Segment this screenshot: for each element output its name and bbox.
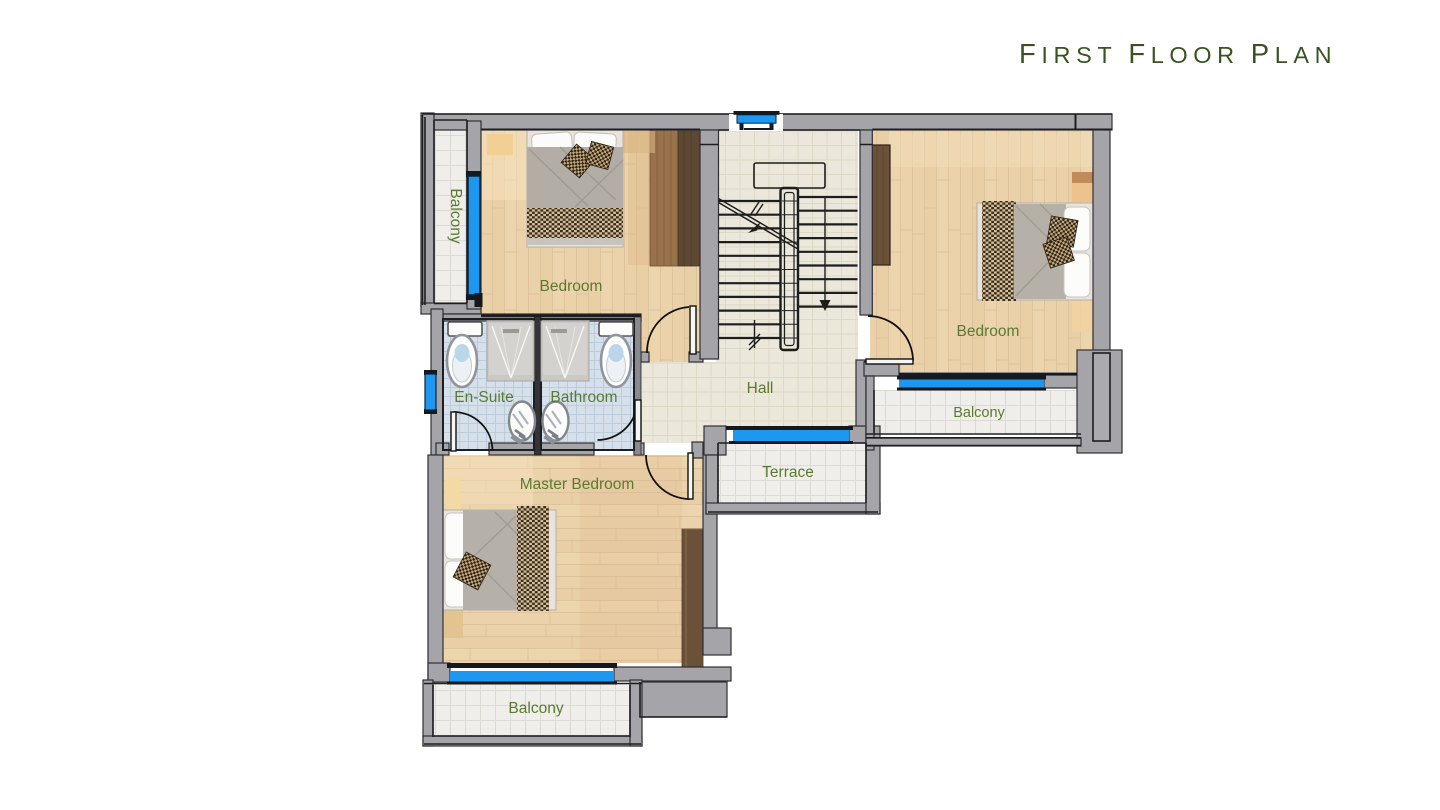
- svg-text:Bathroom: Bathroom: [550, 389, 617, 406]
- svg-text:FIRSTFLOORPLAN: FIRSTFLOORPLAN: [1019, 38, 1337, 69]
- svg-text:Balcony: Balcony: [508, 700, 563, 717]
- svg-text:Master Bedroom: Master Bedroom: [520, 476, 635, 493]
- svg-text:Balcony: Balcony: [953, 405, 1005, 421]
- svg-text:Hall: Hall: [747, 380, 774, 397]
- svg-text:Bedroom: Bedroom: [957, 323, 1020, 340]
- svg-text:En-Suite: En-Suite: [454, 389, 513, 406]
- svg-text:Terrace: Terrace: [762, 464, 814, 481]
- svg-text:Balcony: Balcony: [447, 188, 464, 243]
- svg-text:Bedroom: Bedroom: [540, 278, 603, 295]
